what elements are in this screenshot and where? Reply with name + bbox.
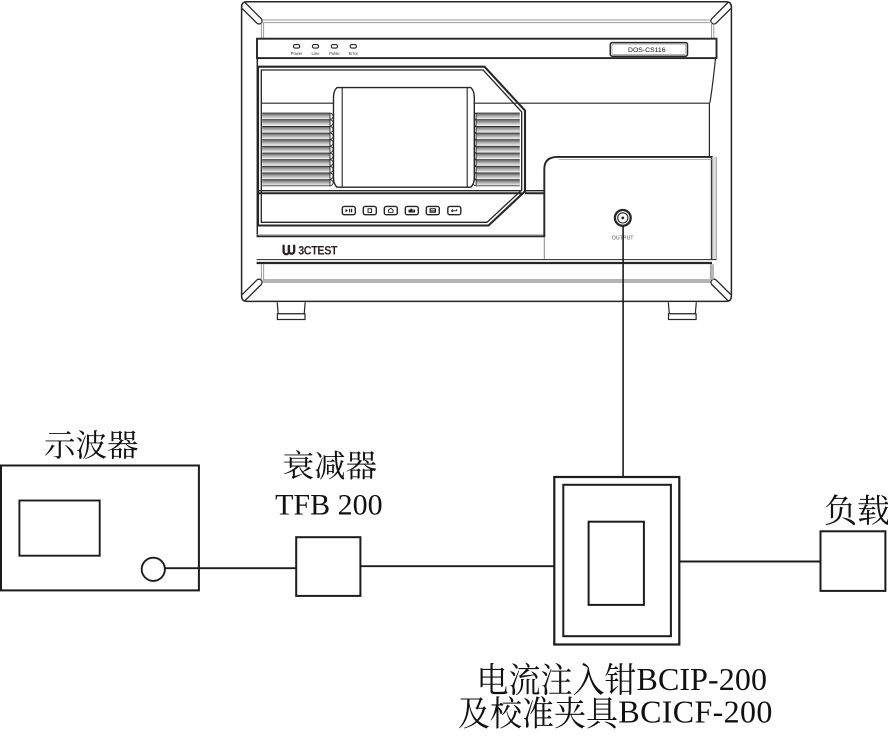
svg-text:3CTEST: 3CTEST xyxy=(298,243,338,257)
svg-text:BCIP-200: BCIP-200 xyxy=(637,661,768,697)
svg-text:Error: Error xyxy=(349,51,359,56)
svg-text:Power: Power xyxy=(291,51,303,56)
svg-text:Line: Line xyxy=(312,51,321,56)
svg-text:TFB 200: TFB 200 xyxy=(275,489,383,522)
svg-text:BCICF-200: BCICF-200 xyxy=(618,694,772,730)
svg-text:DOS-CS116: DOS-CS116 xyxy=(628,47,666,54)
svg-text:Pulse: Pulse xyxy=(329,51,340,56)
